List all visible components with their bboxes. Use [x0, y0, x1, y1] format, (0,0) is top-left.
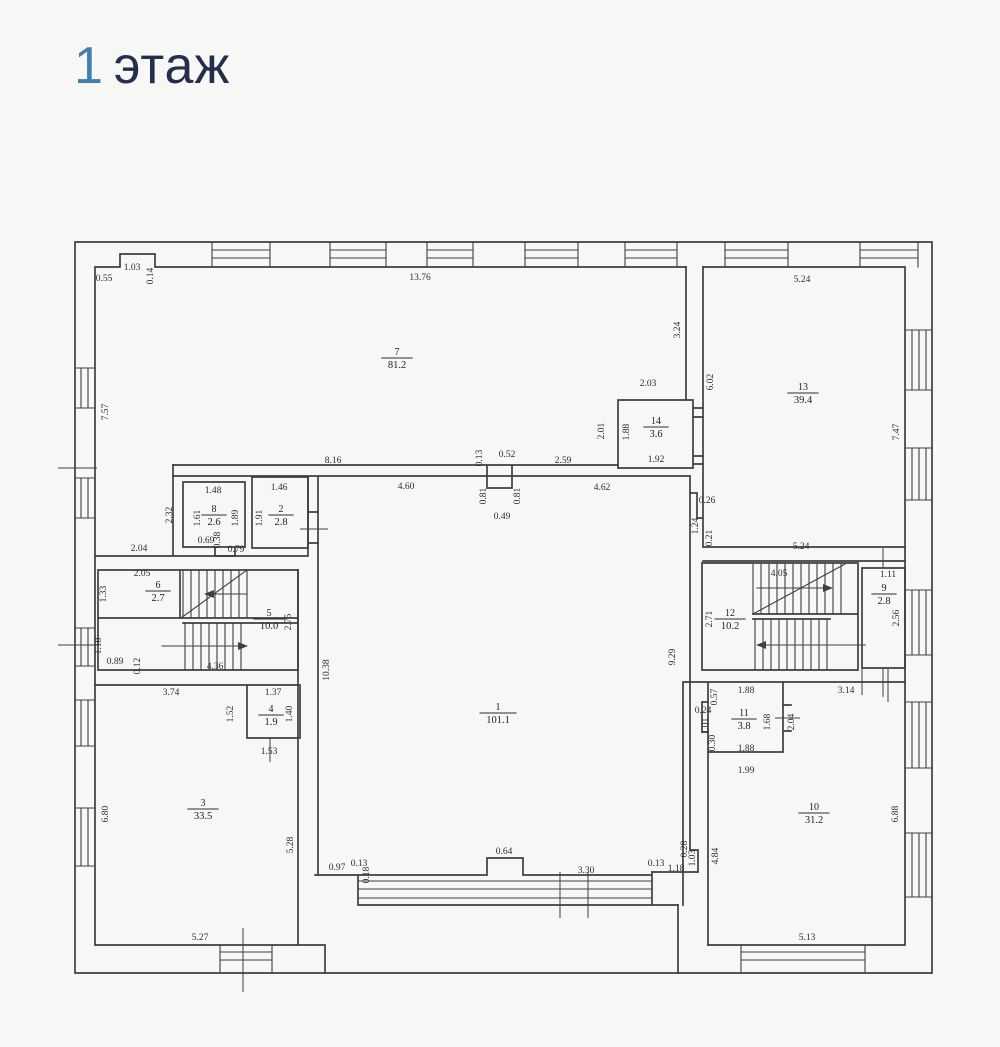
room-area: 2.8	[274, 517, 287, 528]
room-label: 510.0	[253, 608, 284, 632]
dimension-label: 0.79	[228, 545, 245, 555]
room-area: 39.4	[794, 395, 813, 406]
dimension-label: 7.57	[101, 403, 111, 420]
dimension-label: 0.64	[496, 847, 513, 857]
room-number: 5	[267, 608, 272, 619]
room-area: 2.6	[207, 517, 220, 528]
dimension-label: 0.12	[133, 657, 143, 674]
room-label: 1339.4	[787, 382, 818, 406]
dimension-label: 1.52	[226, 705, 236, 722]
room-label: 143.6	[643, 416, 668, 440]
dimension-label: 6.02	[706, 373, 716, 390]
dimension-label: 3.30	[578, 866, 595, 876]
dimension-label: 7.47	[892, 423, 902, 440]
dimension-label: 0.13	[648, 859, 665, 869]
dimension-label: 1.01	[701, 717, 711, 734]
room-number: 4	[269, 704, 274, 715]
dimension-label: 1.37	[265, 688, 282, 698]
room-number: 8	[212, 504, 217, 515]
room-number: 7	[395, 347, 400, 358]
room-area: 3.8	[737, 721, 750, 732]
room-number: 10	[809, 802, 819, 813]
dimension-label: 1.89	[231, 509, 241, 526]
dimension-label: 2.56	[892, 609, 902, 626]
room-area: 81.2	[388, 360, 406, 371]
interior-walls	[95, 267, 905, 973]
dimension-label: 2.59	[555, 456, 572, 466]
dimension-label: 1.11	[880, 570, 897, 580]
room-label: 62.7	[145, 580, 170, 604]
dimension-label: 0.38	[213, 531, 223, 548]
room-area: 31.2	[805, 815, 823, 826]
room-area: 3.6	[649, 429, 662, 440]
stair-direction-arrow	[204, 590, 214, 598]
dimension-label: 1.24	[691, 517, 701, 534]
room-area: 33.5	[194, 811, 212, 822]
dimension-label: 1.99	[738, 766, 755, 776]
dimension-label: 0.55	[96, 274, 113, 284]
room-number: 14	[651, 416, 661, 427]
room-label: 92.8	[871, 583, 896, 607]
dimension-label: 1.03	[124, 263, 141, 273]
room-label: 1101.1	[480, 702, 517, 726]
stair-direction-arrow	[823, 584, 833, 592]
dimension-label: 0.21	[705, 529, 715, 546]
dimension-label: 0.26	[699, 496, 716, 506]
dimension-label: 1.48	[205, 486, 222, 496]
dimension-label: 1.18	[94, 637, 104, 654]
dimension-label: 0.97	[329, 863, 346, 873]
dimension-label: 4.05	[771, 569, 788, 579]
dimension-label: 5.13	[799, 933, 816, 943]
room-number: 1	[496, 702, 501, 713]
room-number: 13	[798, 382, 808, 393]
room-label: 333.5	[187, 798, 218, 822]
dimension-label: 1.88	[738, 686, 755, 696]
dimension-label: 0.24	[695, 706, 712, 716]
dimension-label: 9.29	[668, 648, 678, 665]
dimension-label: 4.36	[207, 662, 224, 672]
outer-walls	[75, 242, 932, 973]
dimension-label: 4.60	[398, 482, 415, 492]
dimension-label: 1.03	[688, 849, 698, 866]
dimension-label: 0.14	[146, 267, 156, 284]
dimension-label: 5.27	[192, 933, 209, 943]
room-number: 6	[156, 580, 161, 591]
dimension-label: 2.71	[705, 610, 715, 627]
dimension-label: 0.30	[708, 734, 718, 751]
stair-direction-arrow	[238, 642, 248, 650]
room-area: 10.2	[721, 621, 739, 632]
dimension-label: 4.62	[594, 483, 611, 493]
dimension-label: 3.14	[838, 686, 855, 696]
dimension-label: 1.33	[99, 585, 109, 602]
dimension-label: 2.04	[131, 544, 148, 554]
room-label: 113.8	[731, 708, 756, 732]
dimension-label: 0.52	[499, 450, 516, 460]
dimension-label: 10.38	[322, 659, 332, 681]
dimension-label: 1.18	[668, 864, 685, 874]
dimension-label: 6.88	[891, 805, 901, 822]
room-area: 1.9	[264, 717, 277, 728]
room-area: 2.7	[151, 593, 164, 604]
dimension-label: 5.28	[286, 836, 296, 853]
dimension-label: 5.24	[794, 275, 811, 285]
page: { "title": {"number": "1", "word": "этаж…	[0, 0, 1000, 1047]
dimension-label: 0.18	[362, 866, 372, 883]
room-area: 10.0	[260, 621, 278, 632]
room-label: 781.2	[381, 347, 412, 371]
dimension-label: 5.24	[793, 542, 810, 552]
dimension-label: 1.92	[648, 455, 665, 465]
dimension-label: 1.91	[255, 509, 265, 526]
room-number: 3	[201, 798, 206, 809]
dimension-label: 0.81	[513, 487, 523, 504]
room-label: 41.9	[258, 704, 283, 728]
dimension-label: 4.84	[711, 847, 721, 864]
stairs	[162, 563, 847, 670]
dimension-label: 2.04	[787, 713, 797, 730]
dimension-label: 2.01	[597, 422, 607, 439]
dimension-label: 1.88	[622, 423, 632, 440]
dimension-label: 3.74	[163, 688, 180, 698]
dimension-label: 1.46	[271, 483, 288, 493]
room-area: 101.1	[486, 715, 510, 726]
dimension-label: 2.03	[640, 379, 657, 389]
dimension-label: 0.49	[494, 512, 511, 522]
room-label: 1031.2	[798, 802, 829, 826]
room-area: 2.8	[877, 596, 890, 607]
floor-plan: 0.551.030.1413.765.243.246.027.477.572.0…	[0, 0, 1000, 1047]
dimension-label: 6.80	[101, 805, 111, 822]
dimension-label: 2.05	[134, 569, 151, 579]
dimension-label: 2.32	[165, 506, 175, 523]
dimension-label: 1.88	[738, 744, 755, 754]
dimension-label: 0.81	[479, 487, 489, 504]
dimension-label: 0.89	[107, 657, 124, 667]
dimension-label: 3.24	[673, 321, 683, 338]
dimension-label: 1.61	[193, 509, 203, 526]
room-labels-layer: 781.2143.61339.482.622.81101.162.7510.01…	[145, 347, 896, 826]
stair-direction-arrow	[756, 641, 766, 649]
room-number: 11	[739, 708, 749, 719]
dimension-label: 8.16	[325, 456, 342, 466]
dimension-label: 0.57	[710, 688, 720, 705]
dimension-label: 1.68	[763, 713, 773, 730]
dimension-label: 1.53	[261, 747, 278, 757]
dimension-label: 1.40	[285, 705, 295, 722]
room-number: 2	[279, 504, 284, 515]
dimension-label: 13.76	[409, 273, 431, 283]
dimension-label: 0.13	[475, 449, 485, 466]
room-label: 22.8	[268, 504, 293, 528]
room-label: 82.6	[201, 504, 226, 528]
room-number: 12	[725, 608, 735, 619]
windows	[75, 242, 932, 973]
room-label: 1210.2	[714, 608, 745, 632]
room-number: 9	[882, 583, 887, 594]
dimension-label: 2.75	[284, 613, 294, 630]
